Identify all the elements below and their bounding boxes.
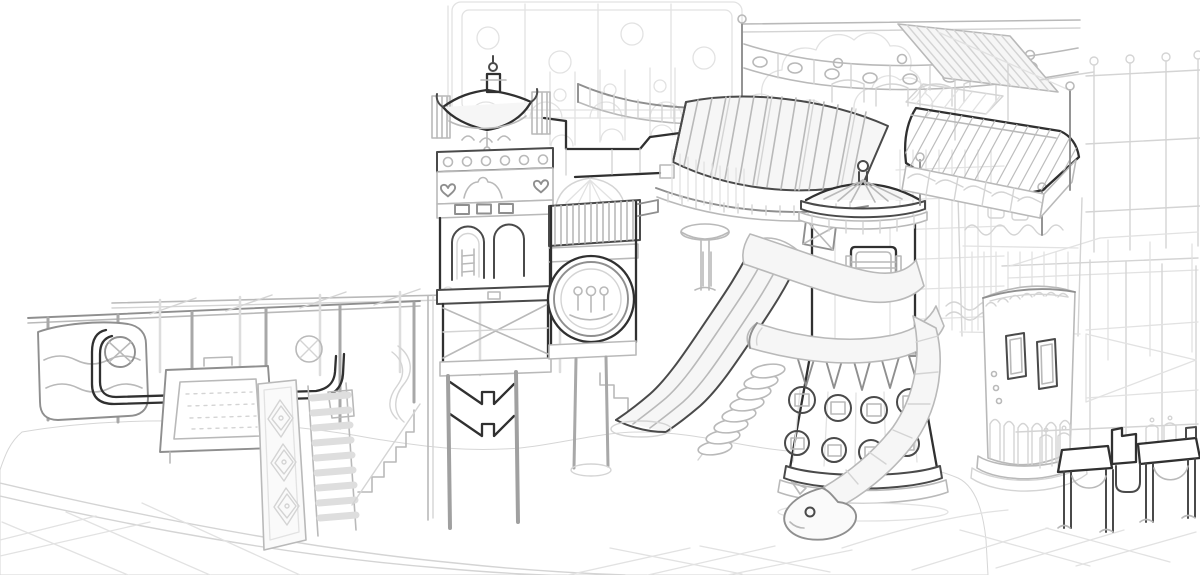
tower-finial-knob xyxy=(858,161,868,171)
playground-sketch xyxy=(0,0,1200,575)
main-tower xyxy=(743,161,948,540)
spinner-wheel xyxy=(548,178,658,476)
sketch-canvas xyxy=(0,0,1200,575)
pagoda-tower xyxy=(432,56,553,528)
floor-tiles xyxy=(0,503,1196,575)
toddler-climbers xyxy=(258,296,433,550)
top-right-frame xyxy=(1040,51,1200,252)
